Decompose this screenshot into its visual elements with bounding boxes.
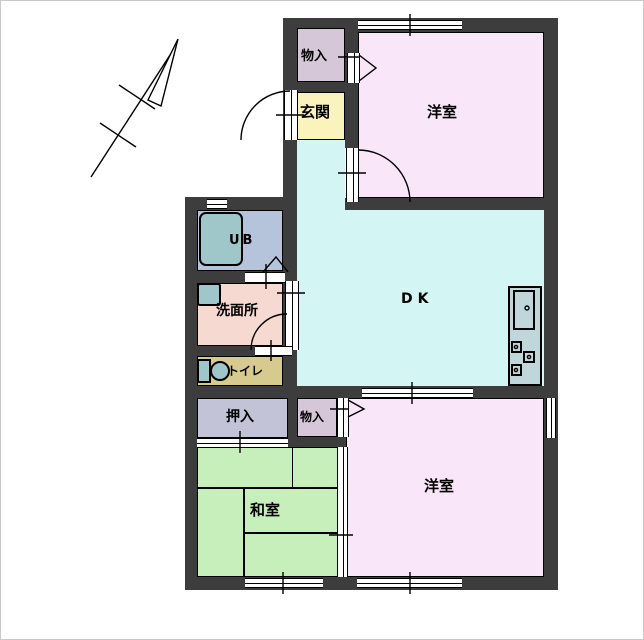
label-dk: DK: [401, 292, 433, 306]
folding-door-storage-top: [347, 53, 360, 83]
label-toilet: トイレ: [227, 365, 263, 377]
window: [245, 578, 323, 588]
stove-burner-icon: [511, 364, 522, 376]
wall: [185, 197, 297, 210]
window: [546, 398, 556, 438]
label-western-top: 洋室: [427, 105, 457, 120]
kitchen-sink-icon: [513, 290, 535, 330]
window: [358, 20, 462, 30]
door-toilet: [255, 346, 292, 356]
wall: [544, 18, 558, 590]
sliding-door-japanese-western: [337, 447, 348, 577]
label-closet: 押入: [226, 410, 254, 424]
door-dk-western-top: [346, 148, 359, 202]
wall: [345, 18, 358, 148]
window: [357, 578, 462, 588]
stove-burner-icon: [511, 341, 522, 353]
toilet-tank-icon: [197, 359, 211, 383]
door-washroom-dk: [285, 281, 299, 350]
tatami-line: [197, 487, 338, 489]
label-storage-bottom: 物入: [300, 411, 324, 423]
sliding-window-dk: [362, 388, 473, 398]
door-ub: [245, 272, 285, 283]
label-entrance: 玄関: [300, 105, 330, 120]
floor-plan: 物入 玄関 洋室 DK UB 洗面所 トイレ 押入 物入 和室 洋室: [0, 0, 644, 640]
entrance-door: [284, 90, 298, 140]
tatami-line: [292, 447, 293, 487]
window: [207, 199, 227, 209]
room-hallway: [297, 140, 345, 211]
north-arrow-icon: [91, 39, 178, 177]
sliding-door-closet: [197, 438, 288, 448]
folding-door-storage-bottom: [337, 398, 349, 437]
label-storage-top: 物入: [301, 50, 327, 63]
label-japanese: 和室: [250, 503, 280, 518]
label-washroom: 洗面所: [216, 304, 258, 318]
label-unit-bath: UB: [229, 234, 255, 247]
wall: [288, 437, 346, 447]
stove-burner-icon: [523, 351, 535, 363]
label-western-bottom: 洋室: [424, 479, 454, 494]
tatami-line: [243, 532, 338, 534]
